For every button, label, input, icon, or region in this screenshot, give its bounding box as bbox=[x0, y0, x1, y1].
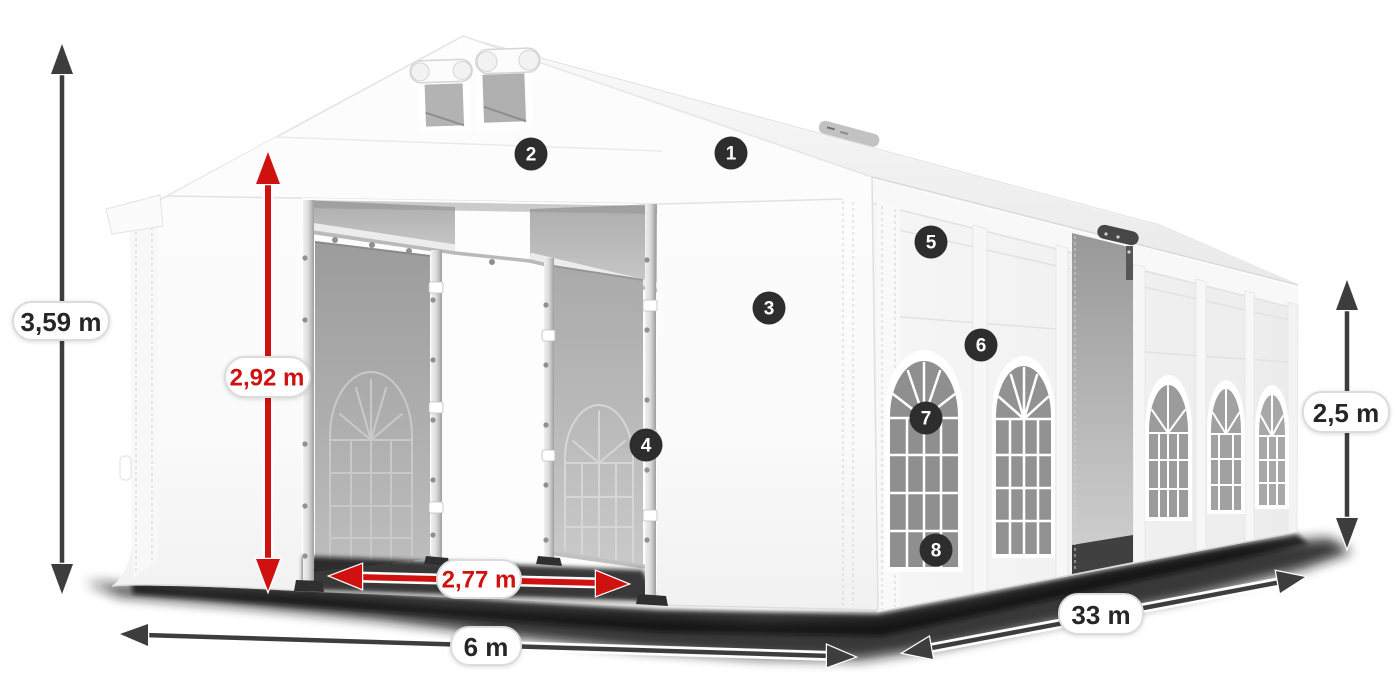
left-door-panel[interactable] bbox=[312, 242, 436, 570]
svg-text:4: 4 bbox=[641, 436, 652, 457]
badge-5[interactable]: 5 bbox=[915, 226, 948, 259]
tent-dimension-diagram: 3,59 m 2,92 m 2,77 m 6 m bbox=[0, 0, 1400, 700]
entrance-width-label: 2,77 m bbox=[442, 567, 517, 594]
side-window-3 bbox=[1145, 375, 1192, 521]
svg-text:3: 3 bbox=[764, 299, 775, 320]
right-door-panel[interactable] bbox=[549, 266, 647, 568]
wall-tie-tab bbox=[120, 456, 131, 480]
tent-illustration bbox=[106, 36, 1298, 612]
badge-6[interactable]: 6 bbox=[965, 329, 998, 362]
badge-7[interactable]: 7 bbox=[910, 402, 943, 435]
dimension-total-height: 3,59 m bbox=[13, 44, 109, 594]
svg-text:5: 5 bbox=[926, 233, 937, 254]
front-width-label: 6 m bbox=[464, 632, 509, 662]
svg-text:8: 8 bbox=[931, 541, 942, 562]
tent-dimension-diagram-stage: 3,59 m 2,92 m 2,77 m 6 m bbox=[0, 0, 1400, 700]
dimension-wall-height: 2,5 m bbox=[1303, 280, 1389, 548]
front-entrance-opening[interactable] bbox=[294, 198, 668, 606]
wall-height-label: 2,5 m bbox=[1313, 398, 1380, 428]
entrance-height-label: 2,92 m bbox=[230, 365, 305, 392]
front-left-corner-sleeve bbox=[106, 195, 163, 578]
side-window-4 bbox=[1207, 380, 1245, 514]
badge-4[interactable]: 4 bbox=[630, 429, 663, 462]
svg-text:2: 2 bbox=[526, 145, 537, 166]
badge-3[interactable]: 3 bbox=[753, 292, 786, 325]
badge-8[interactable]: 8 bbox=[920, 534, 953, 567]
svg-text:6: 6 bbox=[976, 336, 987, 357]
total-height-label: 3,59 m bbox=[21, 307, 102, 337]
side-window-5 bbox=[1255, 385, 1289, 509]
svg-text:7: 7 bbox=[921, 409, 932, 430]
badge-2[interactable]: 2 bbox=[515, 138, 548, 171]
side-doorway[interactable] bbox=[1072, 223, 1140, 574]
side-window-2 bbox=[992, 356, 1055, 558]
svg-text:1: 1 bbox=[726, 144, 737, 165]
gable-vent-left bbox=[410, 59, 474, 133]
length-label: 33 m bbox=[1071, 600, 1130, 630]
badge-1[interactable]: 1 bbox=[715, 137, 748, 170]
